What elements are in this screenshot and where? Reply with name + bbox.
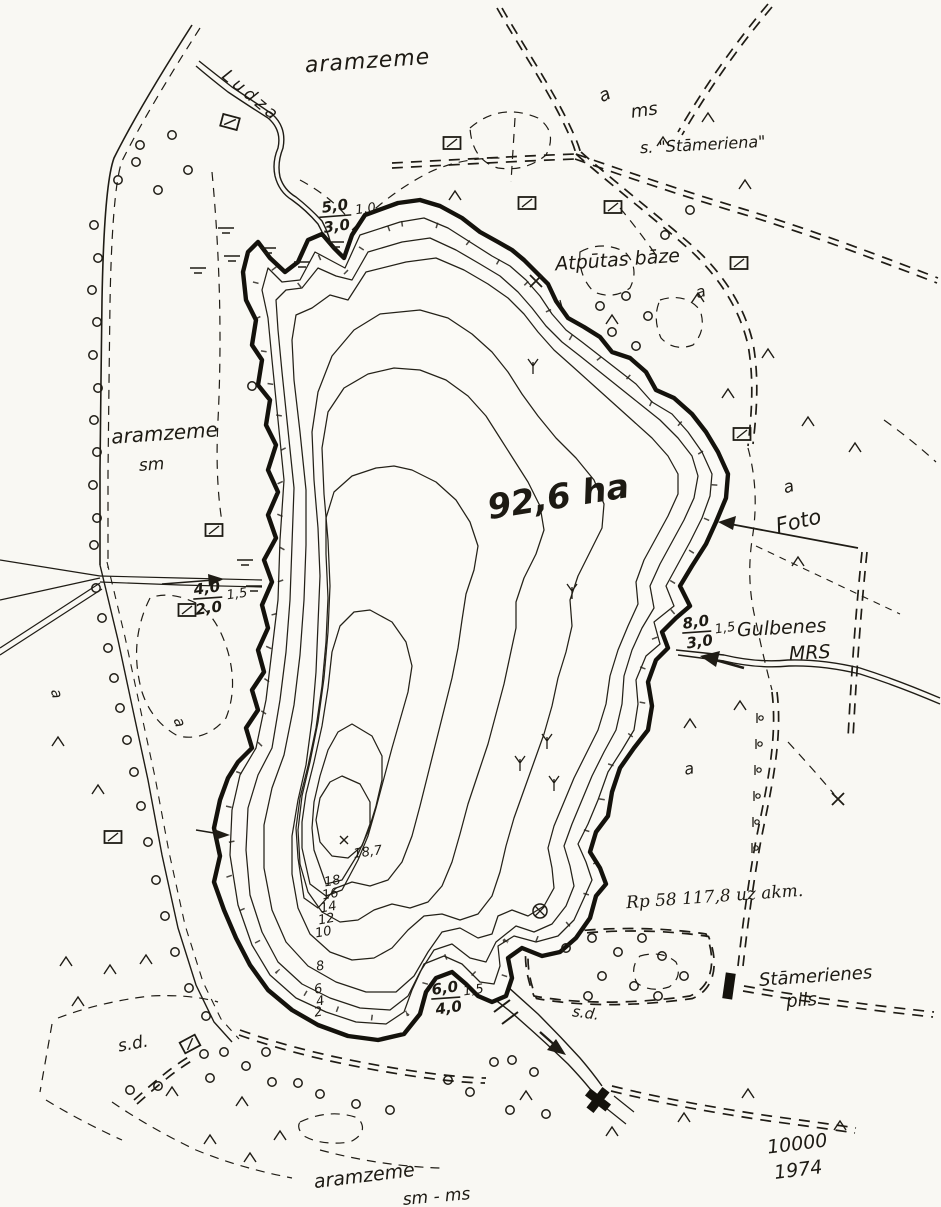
- fraction-denominator: 4,0: [433, 997, 463, 1019]
- fraction-denominator: 3,0: [685, 631, 714, 653]
- map-canvas: aramzeme Ludza a ms s. "Stāmeriena" Atpū…: [0, 0, 941, 1207]
- label-sd-southeast: s.d.: [571, 1002, 600, 1024]
- fraction-side-value: 1,5: [226, 586, 249, 604]
- fraction-denominator: 2,0: [194, 597, 223, 619]
- fraction-side-value: 1,5: [462, 982, 485, 1000]
- fraction-denominator: 3,0: [322, 215, 351, 237]
- label-gulbenes: Gulbenes: [736, 615, 827, 642]
- scanned-lake-plan: aramzeme Ludza a ms s. "Stāmeriena" Atpū…: [0, 0, 941, 1207]
- label-mrs: MRS: [788, 641, 831, 665]
- fraction-numerator: 8,0: [681, 611, 710, 633]
- fraction-numerator: 4,0: [191, 577, 221, 599]
- depth-label-10: 10: [314, 924, 333, 942]
- label-sm-west: sm: [138, 454, 165, 476]
- fraction-side-value: 1,0: [354, 200, 377, 218]
- fraction-numerator: 6,0: [430, 977, 459, 999]
- fraction-numerator: 5,0: [320, 195, 349, 217]
- fraction-side-value: 1,5: [714, 620, 737, 638]
- label-pils-line2: pils: [785, 989, 818, 1012]
- label-ms-north: ms: [629, 98, 659, 123]
